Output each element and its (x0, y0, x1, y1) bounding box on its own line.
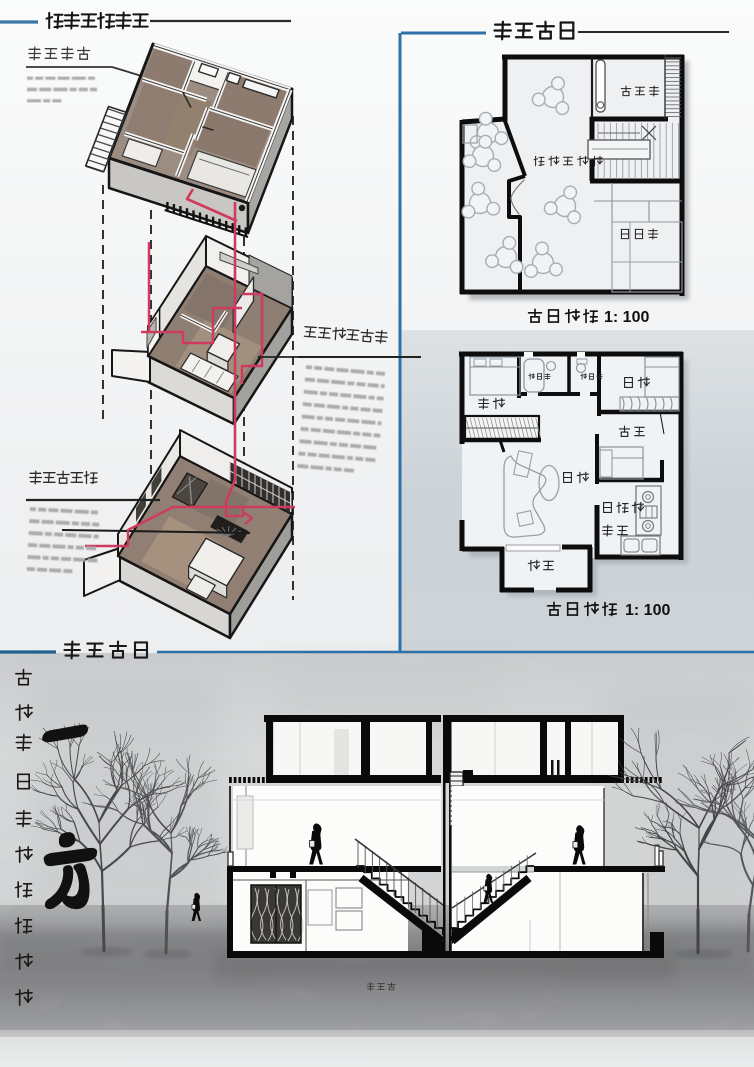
svg-text:1: 100: 1: 100 (625, 602, 670, 619)
svg-text:1: 100: 1: 100 (604, 309, 649, 326)
